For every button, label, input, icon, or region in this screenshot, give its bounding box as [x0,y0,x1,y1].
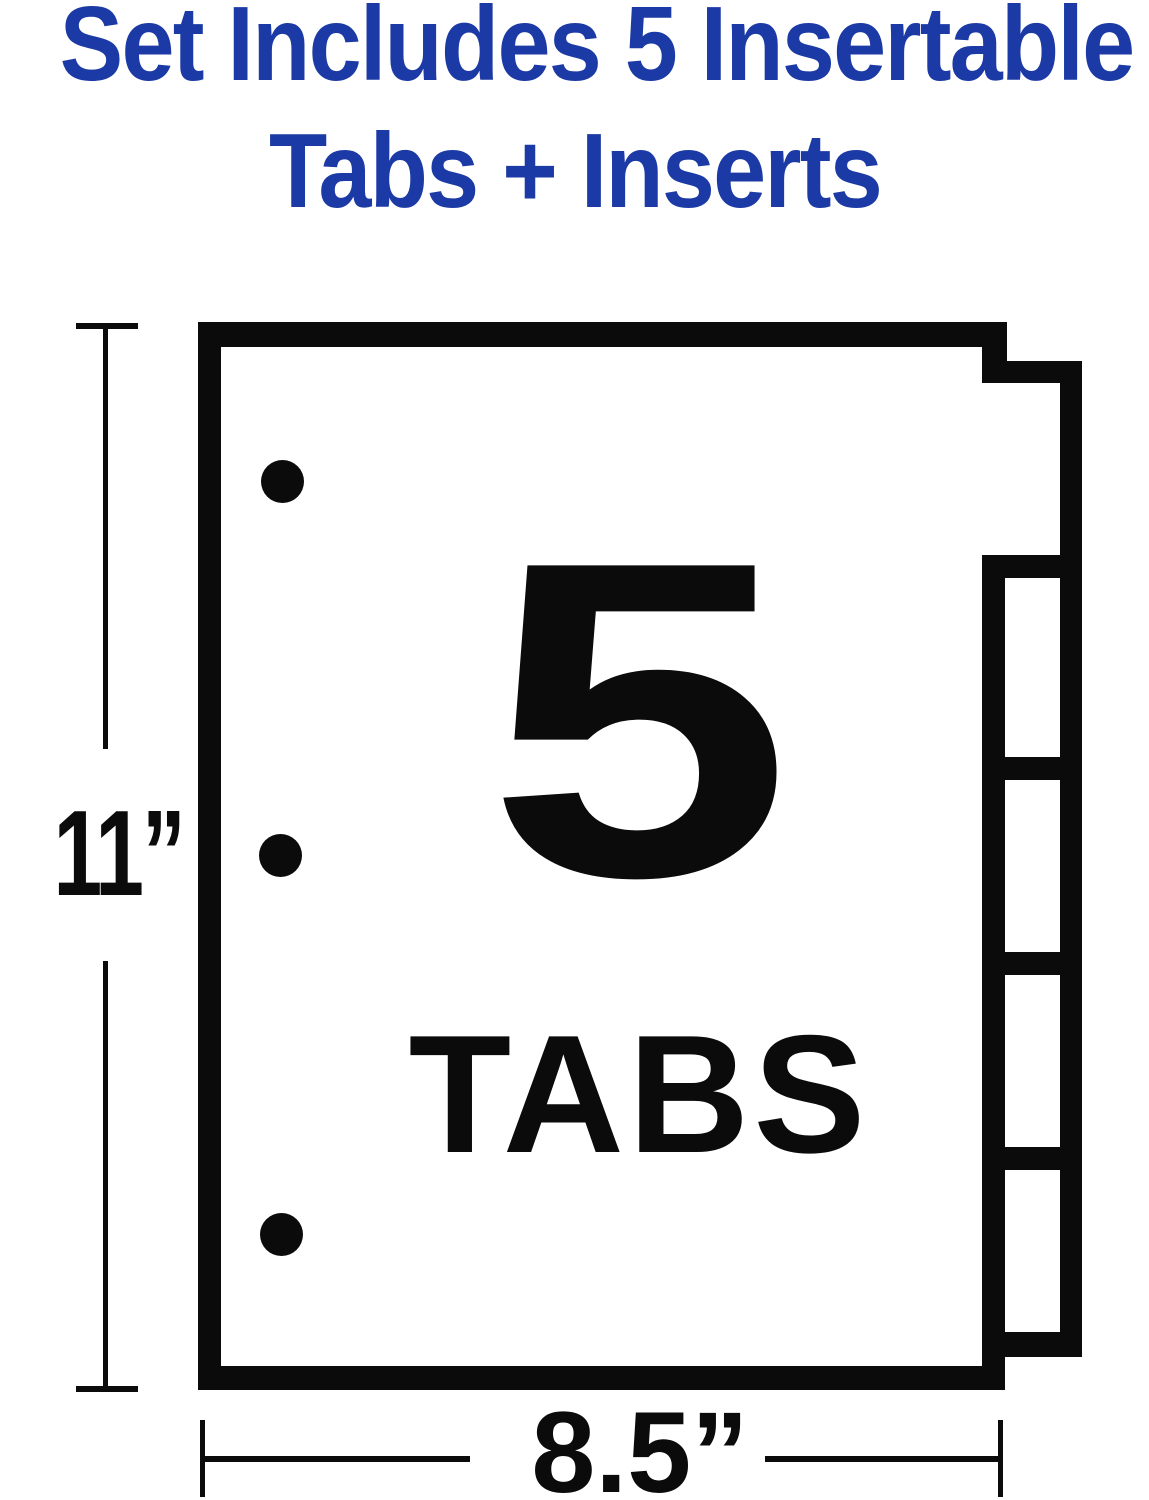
page-bottom-border [198,1366,1004,1390]
punch-hole-bottom [260,1213,303,1256]
width-dimension-right-tick [998,1420,1003,1497]
tab-separator-4 [1003,1147,1060,1170]
product-feature-image: Set Includes 5 Insertable Tabs + Inserts… [0,0,1149,1500]
punch-hole-top [261,460,304,503]
width-dimension-line-right [765,1456,1003,1462]
height-dimension-bottom-cap [76,1386,138,1392]
headline-line-2: Tabs + Inserts [0,118,1149,224]
tabs-outer-edge [1060,361,1082,1357]
height-dimension-label: 11” [0,792,236,914]
punch-hole-middle [259,834,302,877]
headline-line-2-text: Tabs + Inserts [269,118,881,224]
height-dimension-label-text: 11” [53,792,183,914]
tab-count-number: 5 [339,495,939,945]
width-dimension-label: 8.5” [490,1396,790,1500]
tab-separator-3 [1003,952,1060,975]
tab-separator-2 [1003,757,1060,780]
width-dimension-line-left [202,1456,470,1462]
tab-count-number-text: 5 [486,495,791,945]
page-right-border [982,555,1005,1390]
tab-5-bottom-edge [1003,1332,1082,1357]
headline-line-1: Set Includes 5 Insertable [0,0,1149,97]
tab-separator-1 [982,555,1060,578]
height-dimension-line-upper [103,327,108,749]
headline-line-1-text: Set Includes 5 Insertable [60,0,1134,97]
height-dimension-line-lower [103,961,108,1388]
page-top-border [198,322,1005,347]
tab-count-label: TABS [289,1010,989,1178]
